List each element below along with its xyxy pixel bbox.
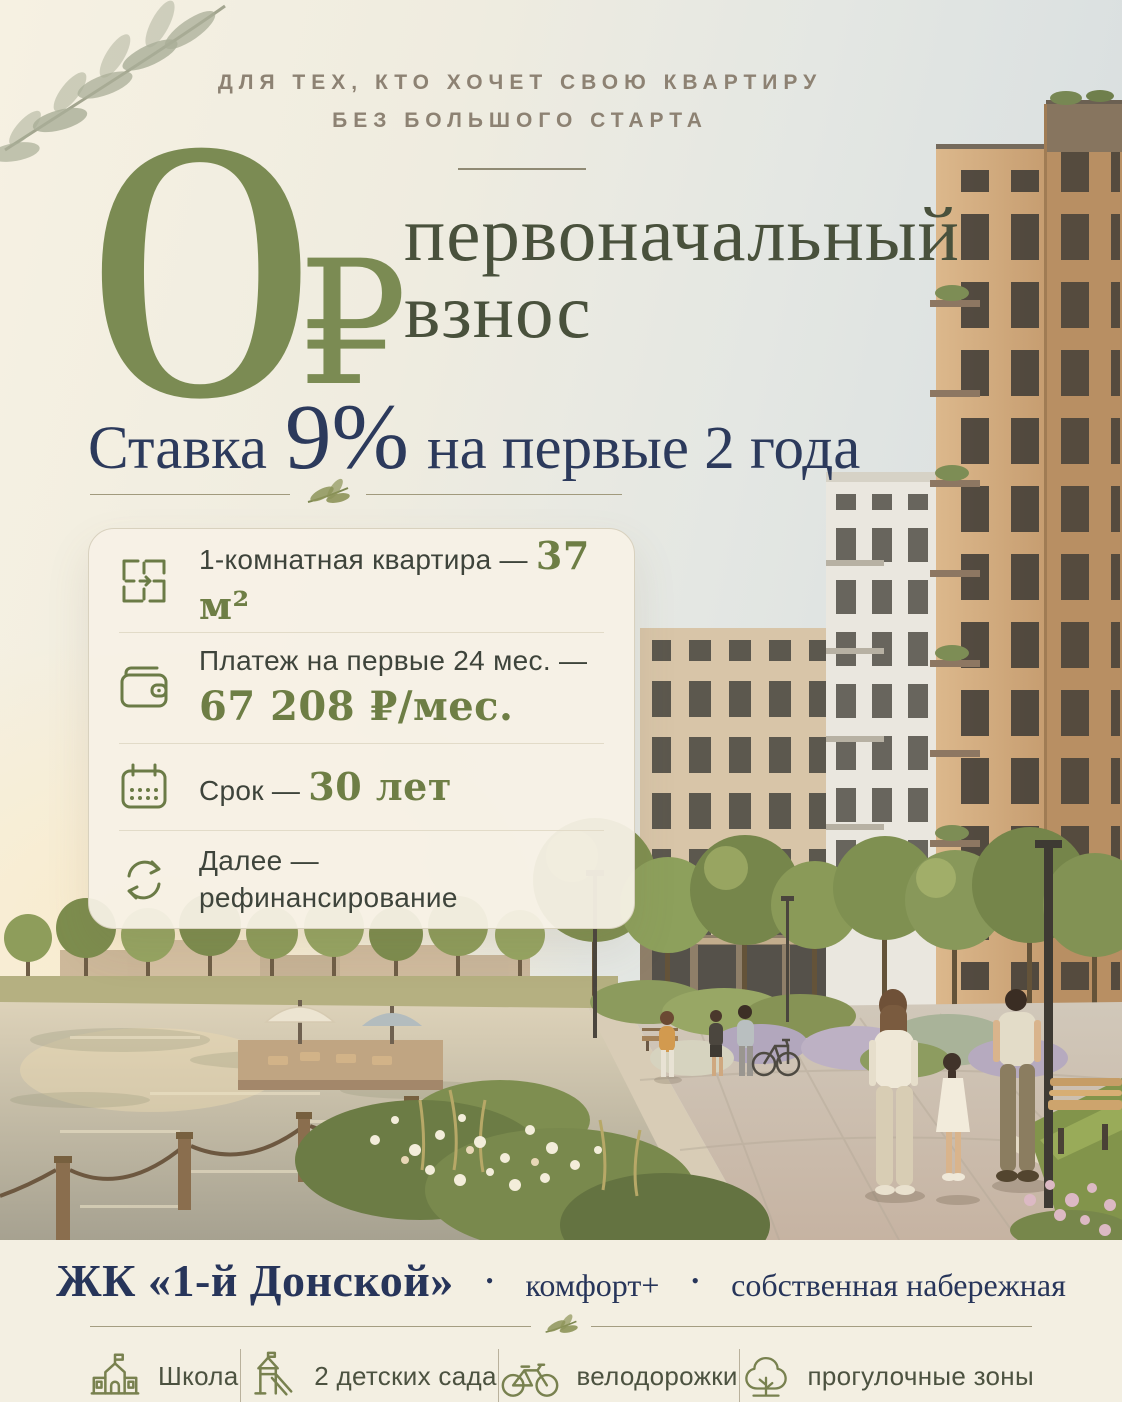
calendar-icon bbox=[115, 758, 173, 816]
refinance-label: Далее — рефинансирование bbox=[199, 843, 458, 916]
hero-title-line2: взнос bbox=[404, 273, 960, 350]
footer-divider bbox=[90, 1313, 1032, 1339]
amenity-kindergartens: 2 детских сада bbox=[242, 1349, 496, 1402]
term-label: Срок — 30 лет bbox=[199, 762, 452, 811]
refresh-icon bbox=[115, 851, 173, 909]
project-name: ЖК «1-й Донской» bbox=[56, 1254, 454, 1307]
offer-card: 1-комнатная квартира — 37 м² Платеж на п… bbox=[88, 528, 635, 929]
card-row-payment: Платеж на первые 24 мес. — 67 208 ₽/мес. bbox=[115, 633, 608, 743]
rate-suffix: на первые 2 года bbox=[427, 415, 860, 482]
bicycle-icon bbox=[500, 1353, 560, 1399]
leaf-ornament-icon bbox=[541, 1313, 581, 1339]
payment-value: 67 208 ₽/мес. bbox=[199, 681, 587, 733]
title-rule bbox=[458, 168, 586, 170]
class-tag: комфорт+ bbox=[526, 1267, 660, 1304]
bullet-separator: • bbox=[691, 1268, 699, 1294]
amenity-school: Школа bbox=[88, 1349, 239, 1402]
card-row-term: Срок — 30 лет bbox=[115, 744, 608, 830]
card-row-refinance: Далее — рефинансирование bbox=[115, 831, 608, 928]
hero-divider bbox=[90, 478, 622, 510]
floorplan-icon bbox=[115, 552, 173, 610]
footer-bar: ЖК «1-й Донской» • комфорт+ • собственна… bbox=[0, 1240, 1122, 1402]
rate-prefix: Ставка bbox=[88, 415, 267, 482]
apartment-label: 1-комнатная квартира — 37 м² bbox=[199, 531, 608, 630]
tree-icon bbox=[741, 1349, 791, 1402]
amenity-label: прогулочные зоны bbox=[807, 1361, 1033, 1392]
rate-value: 9% bbox=[285, 386, 409, 489]
amenity-label: велодорожки bbox=[576, 1361, 737, 1392]
card-row-apartment: 1-комнатная квартира — 37 м² bbox=[115, 529, 608, 632]
amenity-label: Школа bbox=[158, 1361, 239, 1392]
rate-line: Ставка 9% на первые 2 года bbox=[88, 384, 860, 491]
hero-title-line1: первоначальный bbox=[404, 196, 960, 273]
real-estate-promo-poster: ДЛЯ ТЕХ, КТО ХОЧЕТ СВОЮ КВАРТИРУ БЕЗ БОЛ… bbox=[0, 0, 1122, 1402]
leaf-ornament-icon bbox=[302, 478, 354, 510]
school-icon bbox=[88, 1349, 142, 1402]
amenity-bike-lanes: велодорожки bbox=[500, 1353, 737, 1399]
project-row: ЖК «1-й Донской» • комфорт+ • собственна… bbox=[0, 1254, 1122, 1307]
bullet-separator: • bbox=[486, 1268, 494, 1294]
playground-icon bbox=[242, 1349, 298, 1402]
amenity-separator bbox=[498, 1349, 499, 1402]
embankment-tag: собственная набережная bbox=[731, 1267, 1066, 1304]
amenity-separator bbox=[240, 1349, 241, 1402]
payment-label: Платеж на первые 24 мес. — 67 208 ₽/мес. bbox=[199, 643, 587, 733]
term-value: 30 лет bbox=[308, 764, 452, 809]
amenity-separator bbox=[739, 1349, 740, 1402]
amenity-label: 2 детских сада bbox=[314, 1361, 496, 1392]
wallet-icon bbox=[115, 659, 173, 717]
amenity-walking-zones: прогулочные зоны bbox=[741, 1349, 1033, 1402]
hero-title: первоначальный взнос bbox=[404, 196, 960, 350]
amenities-row: Школа 2 детских сада bbox=[88, 1349, 1034, 1402]
